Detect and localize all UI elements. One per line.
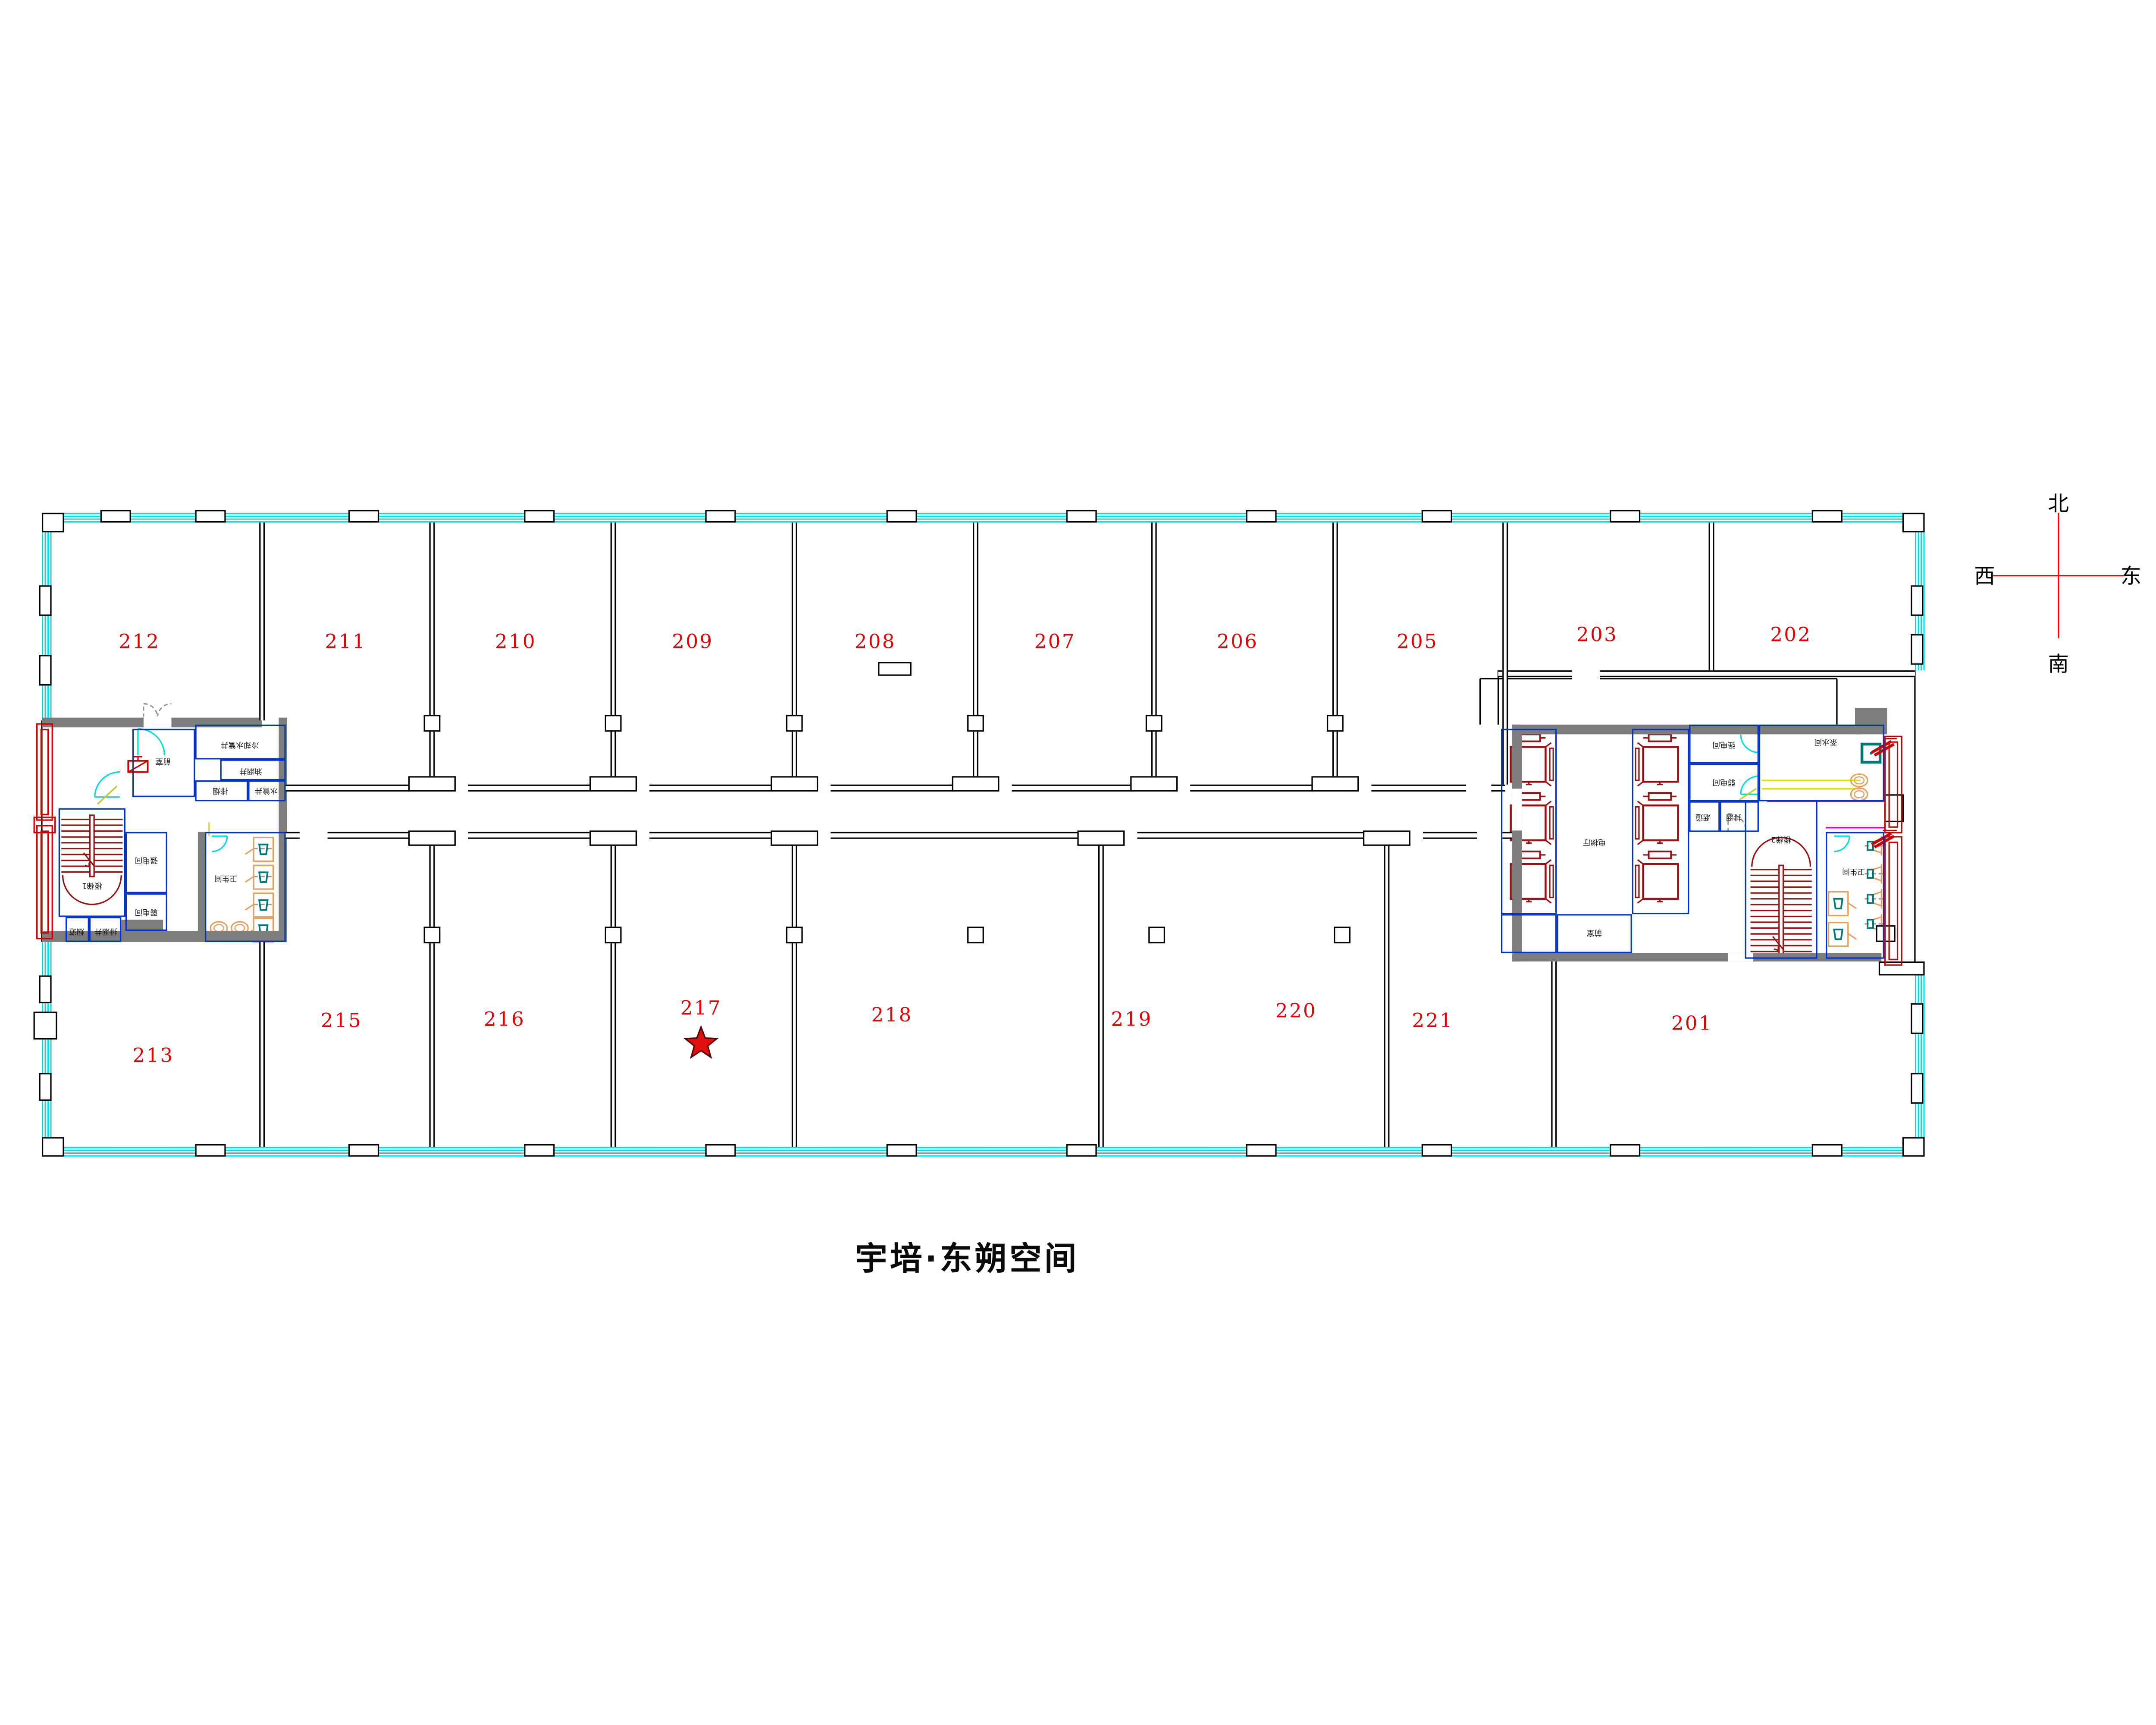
core-room-label: 排烟 [213,785,228,792]
core-room-label: 卫生间 [1842,866,1865,873]
core-room-label: 电梯厅 [1583,836,1606,844]
core-room-label: 强电间 [1712,739,1735,747]
room-label-211: 211 [325,631,367,654]
core-room-label: 水管井 [255,785,278,792]
core-room-label: 排烟 [1726,811,1742,819]
core-room-label: 烟道 [1695,811,1711,819]
room-label-201: 201 [1671,1013,1713,1036]
core-room-label: 强电间 [135,855,158,862]
plan-label-layer: 2122112102092082072062052032022132152162… [0,0,2156,1725]
room-label-217: 217 [680,998,722,1020]
core-room-label: 前室 [1587,927,1602,935]
room-label-216: 216 [484,1009,525,1031]
core-room-label: 楼梯1 [82,880,102,887]
compass-north-label: 北 [2048,488,2069,518]
room-label-218: 218 [871,1005,912,1027]
room-label-206: 206 [1217,631,1258,654]
core-room-label: 排烟井 [94,926,117,933]
room-label-215: 215 [321,1010,362,1033]
compass-east-label: 东 [2121,561,2142,590]
core-room-label: 弱电间 [1712,776,1735,784]
room-label-203: 203 [1576,624,1618,647]
room-label-208: 208 [855,631,896,654]
floor-plan-canvas: 2122112102092082072062052032022132152162… [0,0,2156,1725]
core-room-label: 卫生间 [214,873,237,880]
room-label-213: 213 [132,1045,174,1068]
room-label-219: 219 [1111,1009,1152,1031]
room-label-210: 210 [495,631,536,654]
room-label-220: 220 [1275,1001,1317,1023]
compass-south-label: 南 [2048,649,2069,678]
room-label-221: 221 [1412,1010,1454,1033]
core-room-label: 弱电间 [135,906,158,914]
core-room-label: 楼梯2 [1771,834,1791,842]
core-room-label: 烟道 [69,926,85,933]
plan-title: 宇培·东朔空间 [855,1232,1079,1279]
core-room-label: 油烟井 [239,765,262,773]
room-label-202: 202 [1770,624,1811,647]
core-room-label: 冷却水管井 [220,739,259,747]
core-room-label: 前室 [155,756,171,764]
room-label-209: 209 [672,631,713,654]
room-label-212: 212 [119,631,160,654]
core-room-label: 茶水间 [1814,736,1837,744]
room-label-207: 207 [1034,631,1076,654]
room-label-205: 205 [1397,631,1438,654]
compass-west-label: 西 [1974,561,1995,590]
